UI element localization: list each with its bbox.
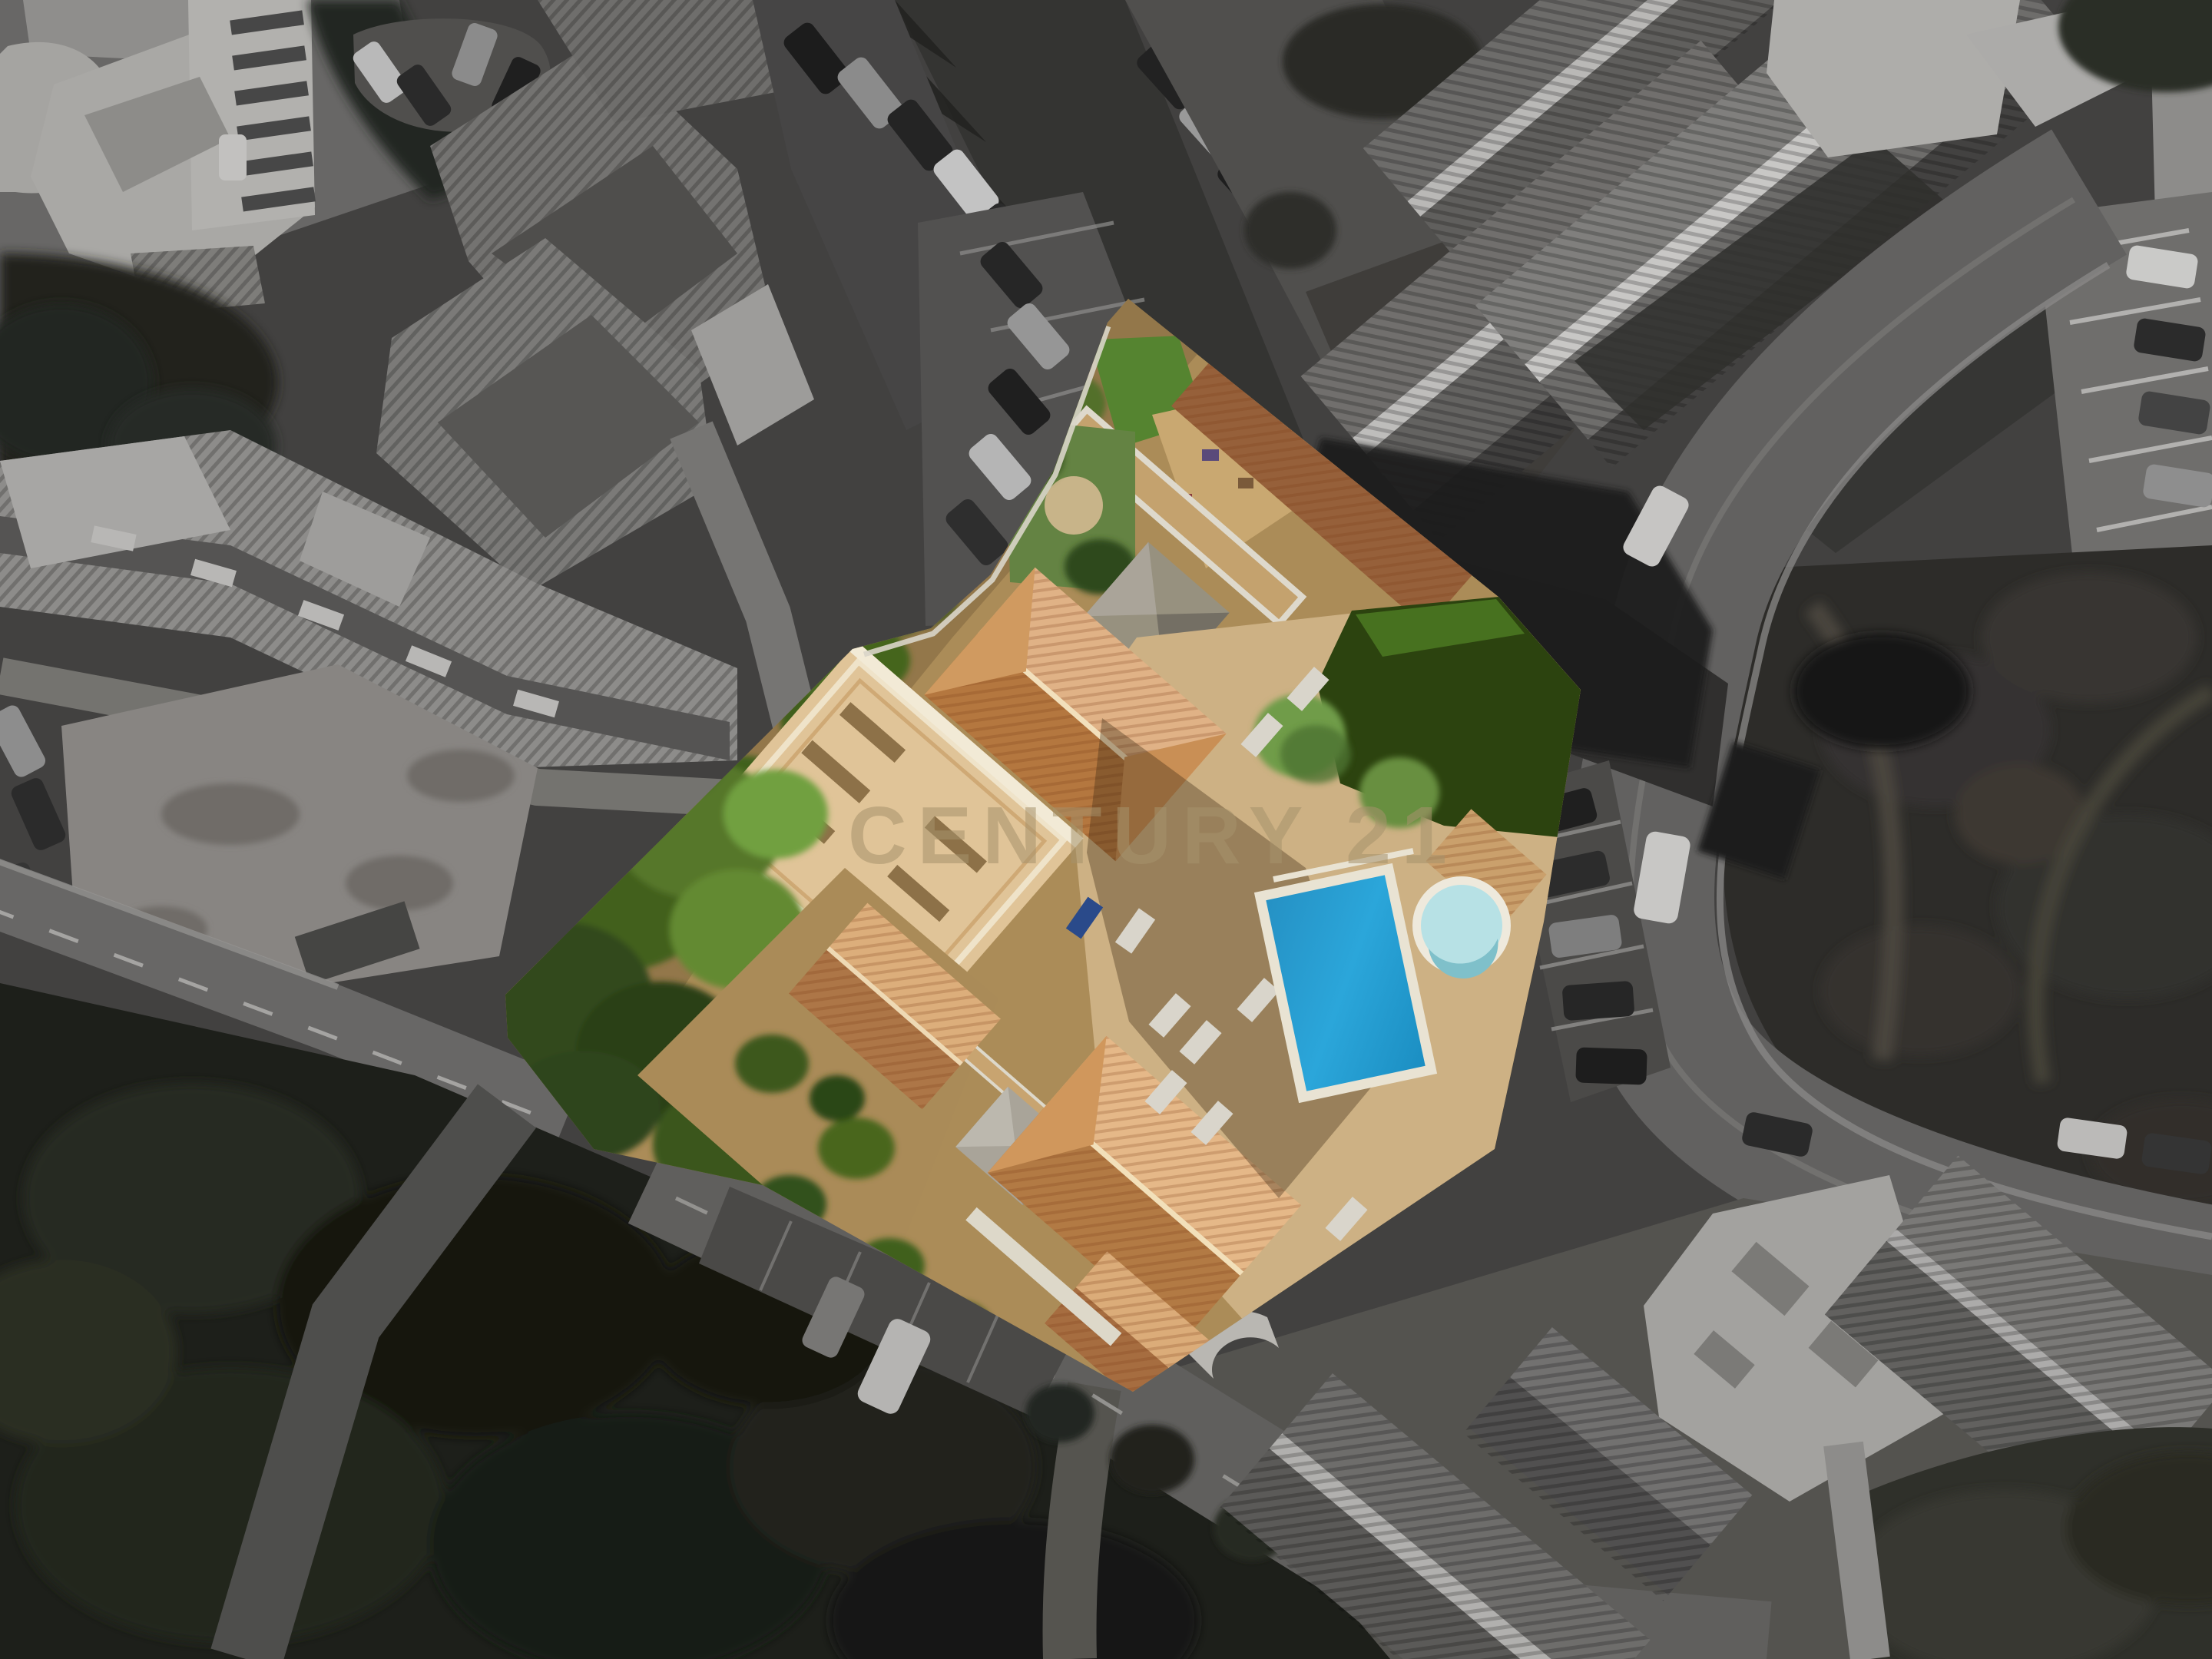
svg-text:CENTURY 21: CENTURY 21 bbox=[848, 790, 1458, 881]
